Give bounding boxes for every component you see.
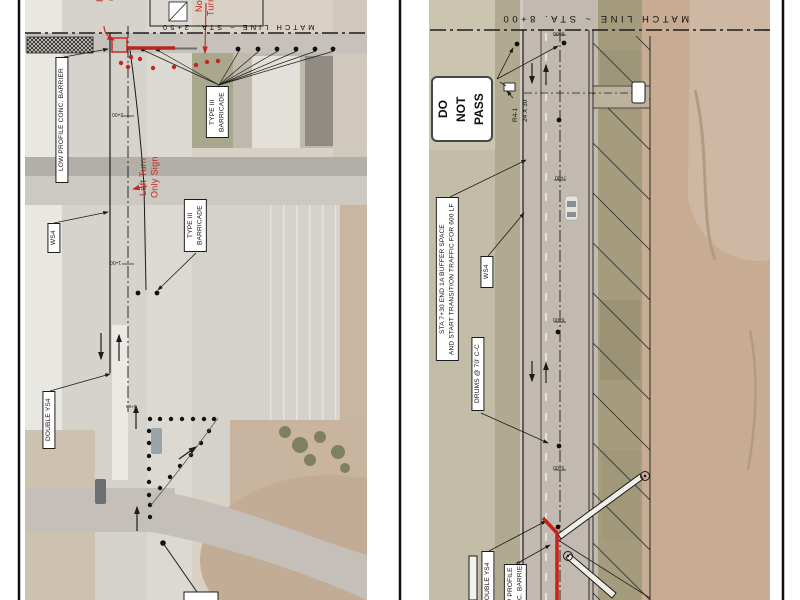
do-not-pass-sign: DO NOT PASS [431, 76, 493, 142]
station-2-00: 2+00 [112, 111, 123, 117]
red-note-closure: Ro Cl III [95, 0, 129, 26]
match-line-label-left: MATCH LINE ~ STA. 2+50 [160, 23, 315, 32]
label-low-profile-right: LOW PROFILE CONC. BARRIER [504, 564, 527, 600]
match-line-label-right: MATCH LINE ~ STA. 8+00 [500, 13, 689, 24]
label-buffer-note: STA 7+30 END 1A BUFFER SPACE AND START T… [436, 197, 459, 361]
label-low-profile-barrier: LOW PROFILE CONC. BARRIER [55, 57, 68, 183]
station-5-00: 5+00 [553, 464, 564, 470]
barrier-segment [469, 556, 477, 600]
label-drums: DRUMS @ 70' C-C [471, 337, 484, 411]
sign-spec-r4-1: R4-1 24 X 30 [511, 80, 531, 122]
hatched-closed-area [593, 36, 650, 600]
car-on-road [565, 196, 578, 220]
station-6-00: 6+00 [553, 316, 564, 322]
left-aerial-photo [25, 0, 460, 600]
traffic-control-plan-sheet: MATCH LINE ~ STA. 2+50 LOW PROFILE CONC.… [0, 0, 800, 600]
red-note-no-turn: No Turn [194, 0, 217, 34]
station-0-50: 0+50 [126, 404, 136, 409]
station-1-00: 1+00 [110, 259, 121, 265]
label-ws4-right: WS4 [480, 256, 493, 288]
station-7-00: 7+00 [555, 174, 566, 180]
crosshatch-structure [27, 37, 93, 53]
label-type3-barricade-upper: TYPE III BARRICADE [206, 86, 229, 138]
label-ws4: WS4 [47, 223, 60, 253]
red-note-left-turn-only: Left Turn Only Sign [138, 147, 161, 207]
gate-symbol [632, 82, 645, 103]
car-dark [95, 479, 106, 504]
plan-drawing [0, 0, 800, 600]
label-double-ys4: DOUBLE YS4 [42, 391, 55, 449]
label-type3-barricade-lower: TYPE III BARRICADE [184, 199, 207, 252]
car-light [151, 428, 162, 454]
station-8-00: 8+00 [553, 30, 564, 36]
cutoff-label-box [184, 592, 218, 600]
label-double-ys4-right: DOUBLE YS4 [481, 551, 494, 600]
